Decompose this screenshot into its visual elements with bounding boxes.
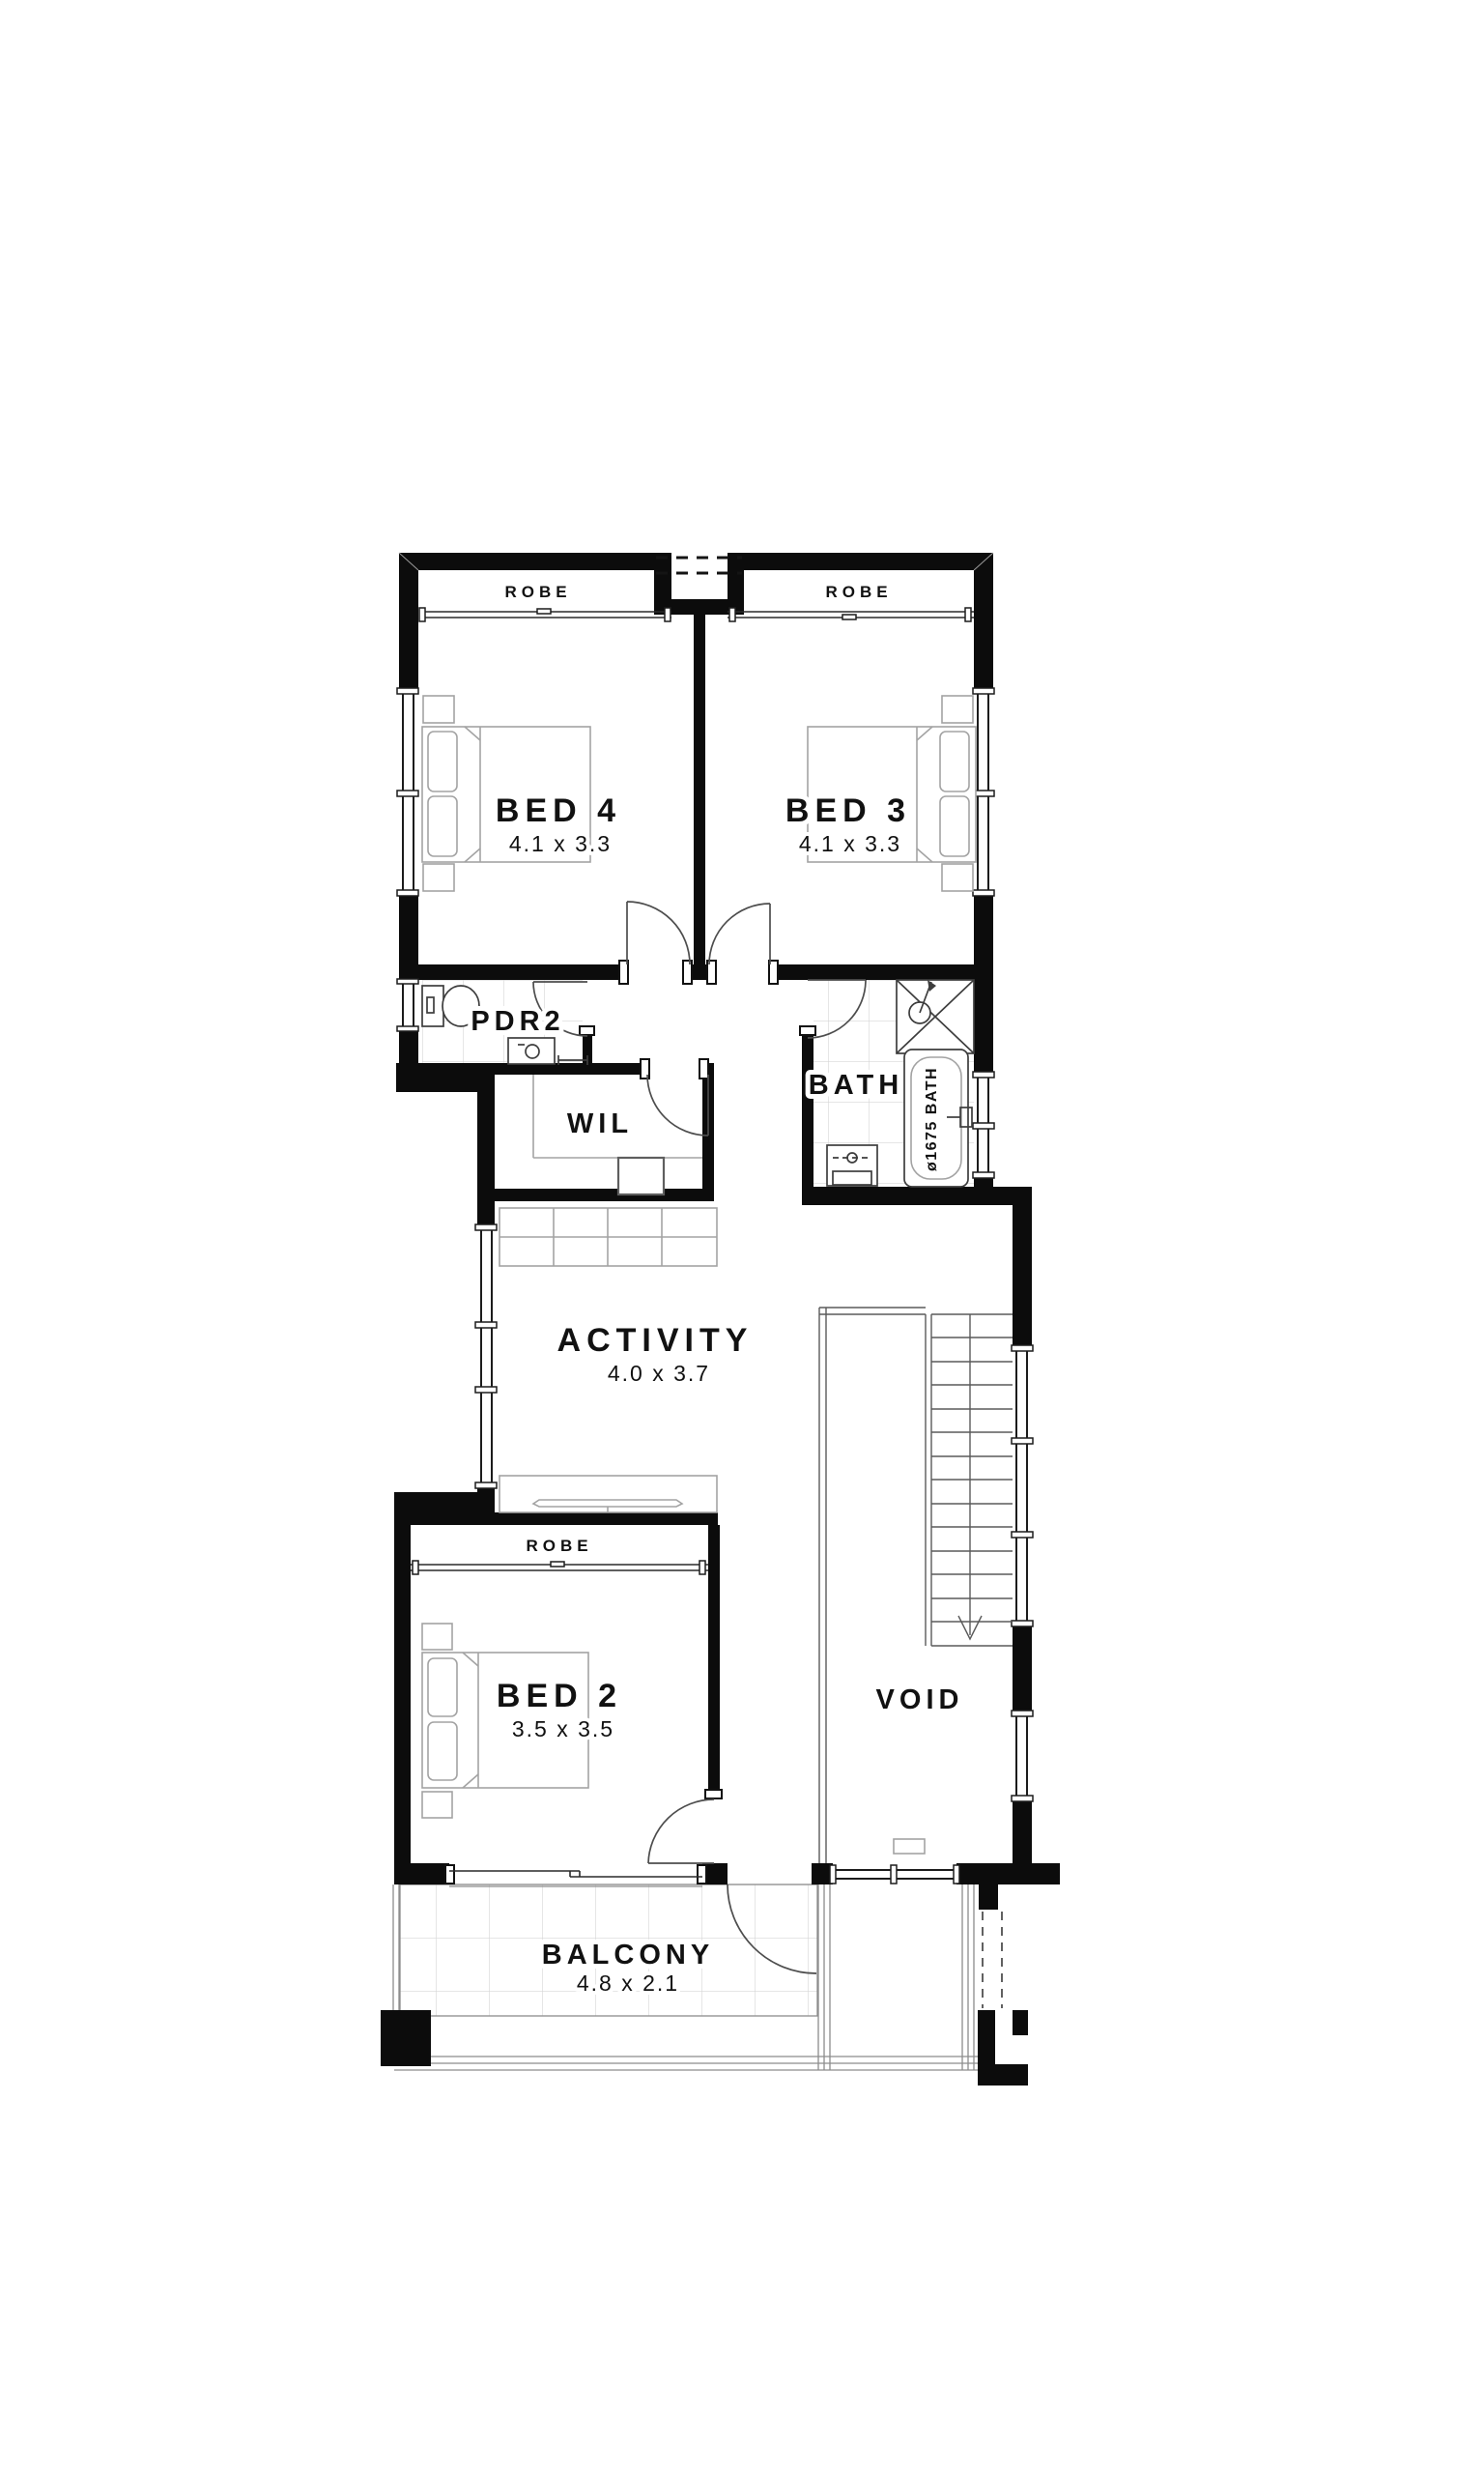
bed2-label: BED 2 [497, 1678, 622, 1714]
activity-dims: 4.0 x 3.7 [608, 1361, 710, 1386]
window-bed4-left [397, 688, 418, 896]
vanity-icon-bath [827, 1145, 877, 1186]
door-swing-wil [647, 1075, 708, 1136]
wil-cabinet [618, 1158, 664, 1194]
bed3-label: BED 3 [785, 792, 911, 829]
floor-plan: ROBE ROBE BED 4 4.1 x 3.3 BED 3 4.1 x 3.… [0, 0, 1484, 2474]
window-void-south [830, 1865, 959, 1884]
window-void-right [1012, 1711, 1033, 1801]
door-swing-bed3 [709, 904, 770, 964]
balcony-corner-pier-right [978, 2010, 1028, 2086]
bath-label: BATH [809, 1070, 903, 1101]
bed4-label: BED 4 [496, 792, 621, 829]
tv-unit-icon [499, 1476, 717, 1512]
pdr2-label: PDR2 [471, 1006, 564, 1037]
door-swing-bed2 [648, 1799, 714, 1863]
shower-icon [897, 980, 974, 1053]
robe-bed3-label: ROBE [825, 583, 892, 601]
robe-bed2-label: ROBE [526, 1537, 592, 1555]
bathtub-label: ø1675 BATH [924, 1067, 940, 1171]
balcony-dims: 4.8 x 2.1 [577, 1971, 679, 1996]
sliding-door-robe-bed4 [419, 608, 671, 621]
door-swing-bed4 [627, 902, 690, 964]
stair-down-arrow [958, 1551, 982, 1639]
stairs-icon [819, 1308, 1013, 1863]
window-activity-left [475, 1224, 497, 1488]
bed4-dims: 4.1 x 3.3 [509, 831, 612, 856]
floor-plan-page: ROBE ROBE BED 4 4.1 x 3.3 BED 3 4.1 x 3.… [0, 0, 1484, 2474]
balcony-corner-pier-left [381, 2010, 431, 2066]
window-stair-right [1012, 1345, 1033, 1626]
vanity-icon-pdr2 [508, 1038, 555, 1064]
void-ledge [894, 1839, 925, 1854]
sliding-door-robe-bed3 [728, 608, 974, 621]
sliding-door-robe-bed2 [411, 1561, 708, 1574]
void-label: VOID [876, 1684, 964, 1715]
activity-label: ACTIVITY [557, 1322, 754, 1359]
wil-label: WIL [567, 1108, 633, 1139]
window-bath-right [973, 1072, 994, 1178]
window-pdr2-left [397, 979, 418, 1031]
bed2-dims: 3.5 x 3.5 [512, 1716, 614, 1741]
bed3-dims: 4.1 x 3.3 [799, 831, 901, 856]
robe-bed4-label: ROBE [504, 583, 571, 601]
sofa-icon [499, 1208, 717, 1266]
balcony-label: BALCONY [542, 1940, 714, 1971]
